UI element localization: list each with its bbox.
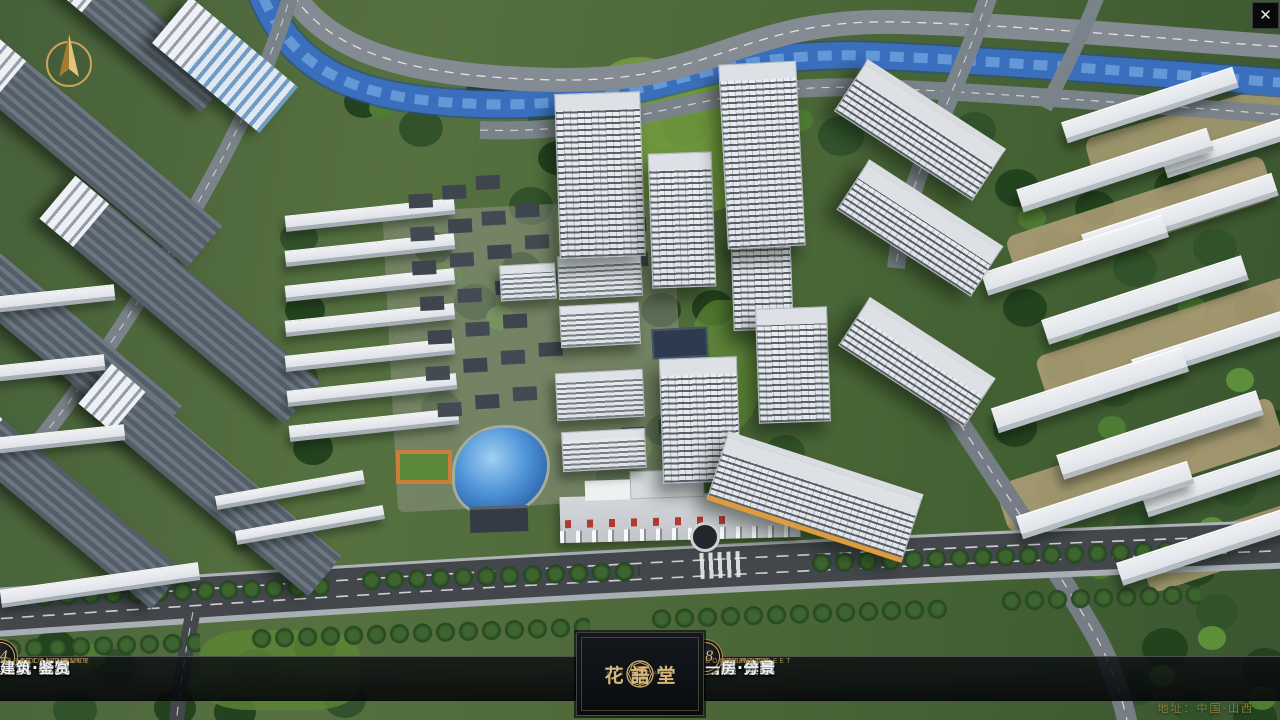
midrise-building [561, 428, 647, 472]
sales-presentation-app: ✕ o1 品牌·介绍BRAND SUPPORT o2 区位·价值LOCATION… [0, 0, 1280, 720]
garden-building [396, 450, 452, 484]
highrise-tower [648, 151, 717, 288]
clubhouse-roof [651, 327, 708, 360]
highrise-tower [718, 61, 806, 250]
gatehouse-roof [470, 505, 529, 533]
courtyard-house-cluster [0, 0, 24, 15]
midrise-building [559, 302, 641, 348]
close-icon[interactable]: ✕ [1252, 2, 1279, 29]
highrise-tower [755, 306, 831, 423]
midrise-building [557, 252, 643, 300]
entrance-emblem [690, 522, 720, 552]
project-address: 地址：中国·山西 [1158, 700, 1255, 716]
midrise-building [499, 263, 557, 302]
compass-north-icon [40, 30, 98, 92]
midrise-building [555, 369, 645, 422]
highrise-tower [554, 91, 646, 259]
project-name-latin: HUA YU TANG [606, 671, 673, 677]
project-logo-panel: 花語堂 HUA YU TANG [576, 632, 704, 716]
crosswalk [699, 551, 744, 579]
